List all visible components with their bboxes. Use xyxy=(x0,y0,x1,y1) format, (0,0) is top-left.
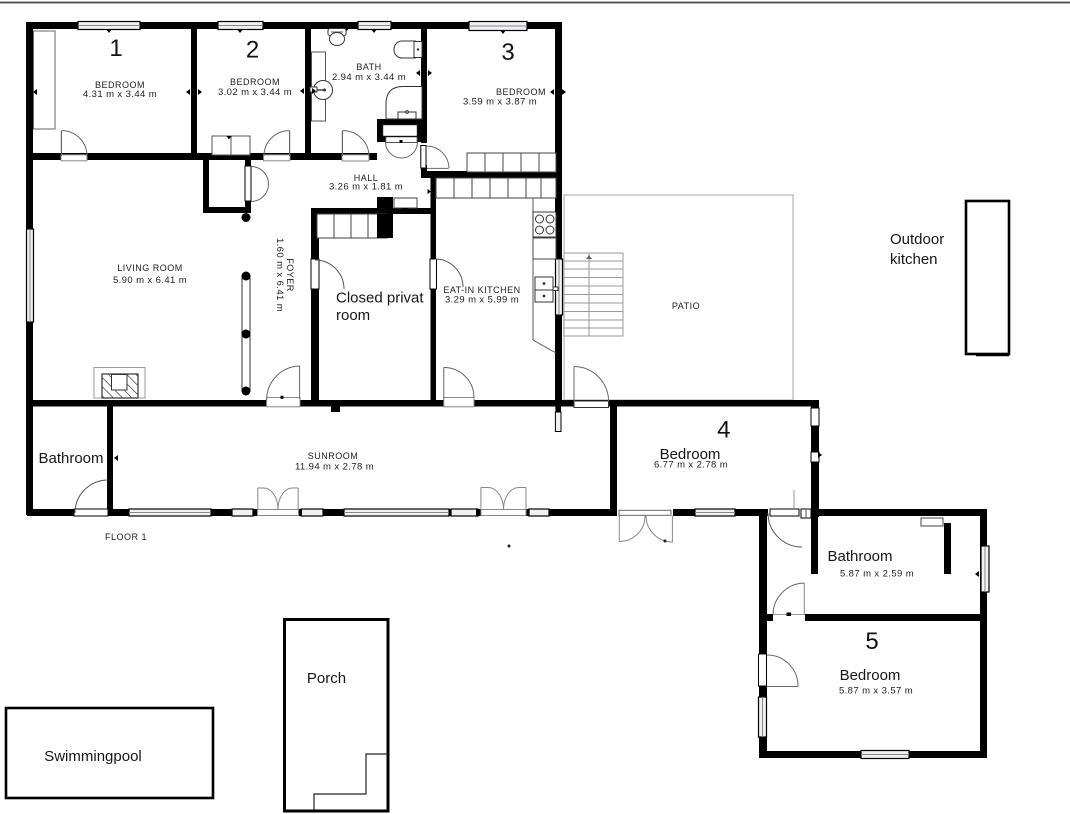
svg-text:4.31 m x 3.44 m: 4.31 m x 3.44 m xyxy=(83,89,157,100)
svg-text:3: 3 xyxy=(501,39,514,66)
svg-text:SUNROOM: SUNROOM xyxy=(308,451,359,461)
svg-text:kitchen: kitchen xyxy=(890,251,938,268)
svg-text:Bathroom: Bathroom xyxy=(38,450,103,467)
svg-text:BEDROOM: BEDROOM xyxy=(230,77,280,87)
svg-text:3.02 m x 3.44 m: 3.02 m x 3.44 m xyxy=(218,87,292,98)
svg-text:6.77 m x 2.78 m: 6.77 m x 2.78 m xyxy=(654,460,728,471)
svg-text:room: room xyxy=(336,307,370,324)
svg-text:LIVING ROOM: LIVING ROOM xyxy=(117,263,183,273)
svg-text:11.94 m x 2.78 m: 11.94 m x 2.78 m xyxy=(295,462,374,473)
svg-text:1.60 m x 6.41 m: 1.60 m x 6.41 m xyxy=(274,238,285,312)
svg-text:5.90 m x 6.41 m: 5.90 m x 6.41 m xyxy=(113,275,187,286)
svg-text:FOYER: FOYER xyxy=(285,258,295,292)
svg-text:Bathroom: Bathroom xyxy=(827,548,892,565)
svg-text:Closed privat: Closed privat xyxy=(336,290,424,307)
svg-text:1: 1 xyxy=(109,35,122,62)
svg-text:Outdoor: Outdoor xyxy=(890,231,944,248)
svg-text:5.87 m x 3.57 m: 5.87 m x 3.57 m xyxy=(839,686,913,697)
svg-text:Bedroom: Bedroom xyxy=(840,667,901,684)
svg-text:BATH: BATH xyxy=(356,62,381,72)
svg-text:3.26 m x 1.81 m: 3.26 m x 1.81 m xyxy=(329,182,403,193)
svg-text:5.87 m x 2.59 m: 5.87 m x 2.59 m xyxy=(840,569,914,580)
svg-text:4: 4 xyxy=(717,417,730,444)
svg-text:EAT-IN KITCHEN: EAT-IN KITCHEN xyxy=(443,285,520,295)
svg-text:PATIO: PATIO xyxy=(672,301,700,311)
svg-text:BEDROOM: BEDROOM xyxy=(496,87,546,97)
svg-text:FLOOR 1: FLOOR 1 xyxy=(105,532,147,542)
svg-text:3.59 m x 3.87 m: 3.59 m x 3.87 m xyxy=(463,97,537,108)
svg-text:3.29 m x 5.99 m: 3.29 m x 5.99 m xyxy=(445,295,519,306)
svg-text:5: 5 xyxy=(865,628,878,655)
svg-text:Swimmingpool: Swimmingpool xyxy=(44,748,142,765)
svg-text:2: 2 xyxy=(246,37,259,64)
svg-text:2.94 m x 3.44 m: 2.94 m x 3.44 m xyxy=(332,72,406,83)
svg-text:Porch: Porch xyxy=(307,670,346,687)
